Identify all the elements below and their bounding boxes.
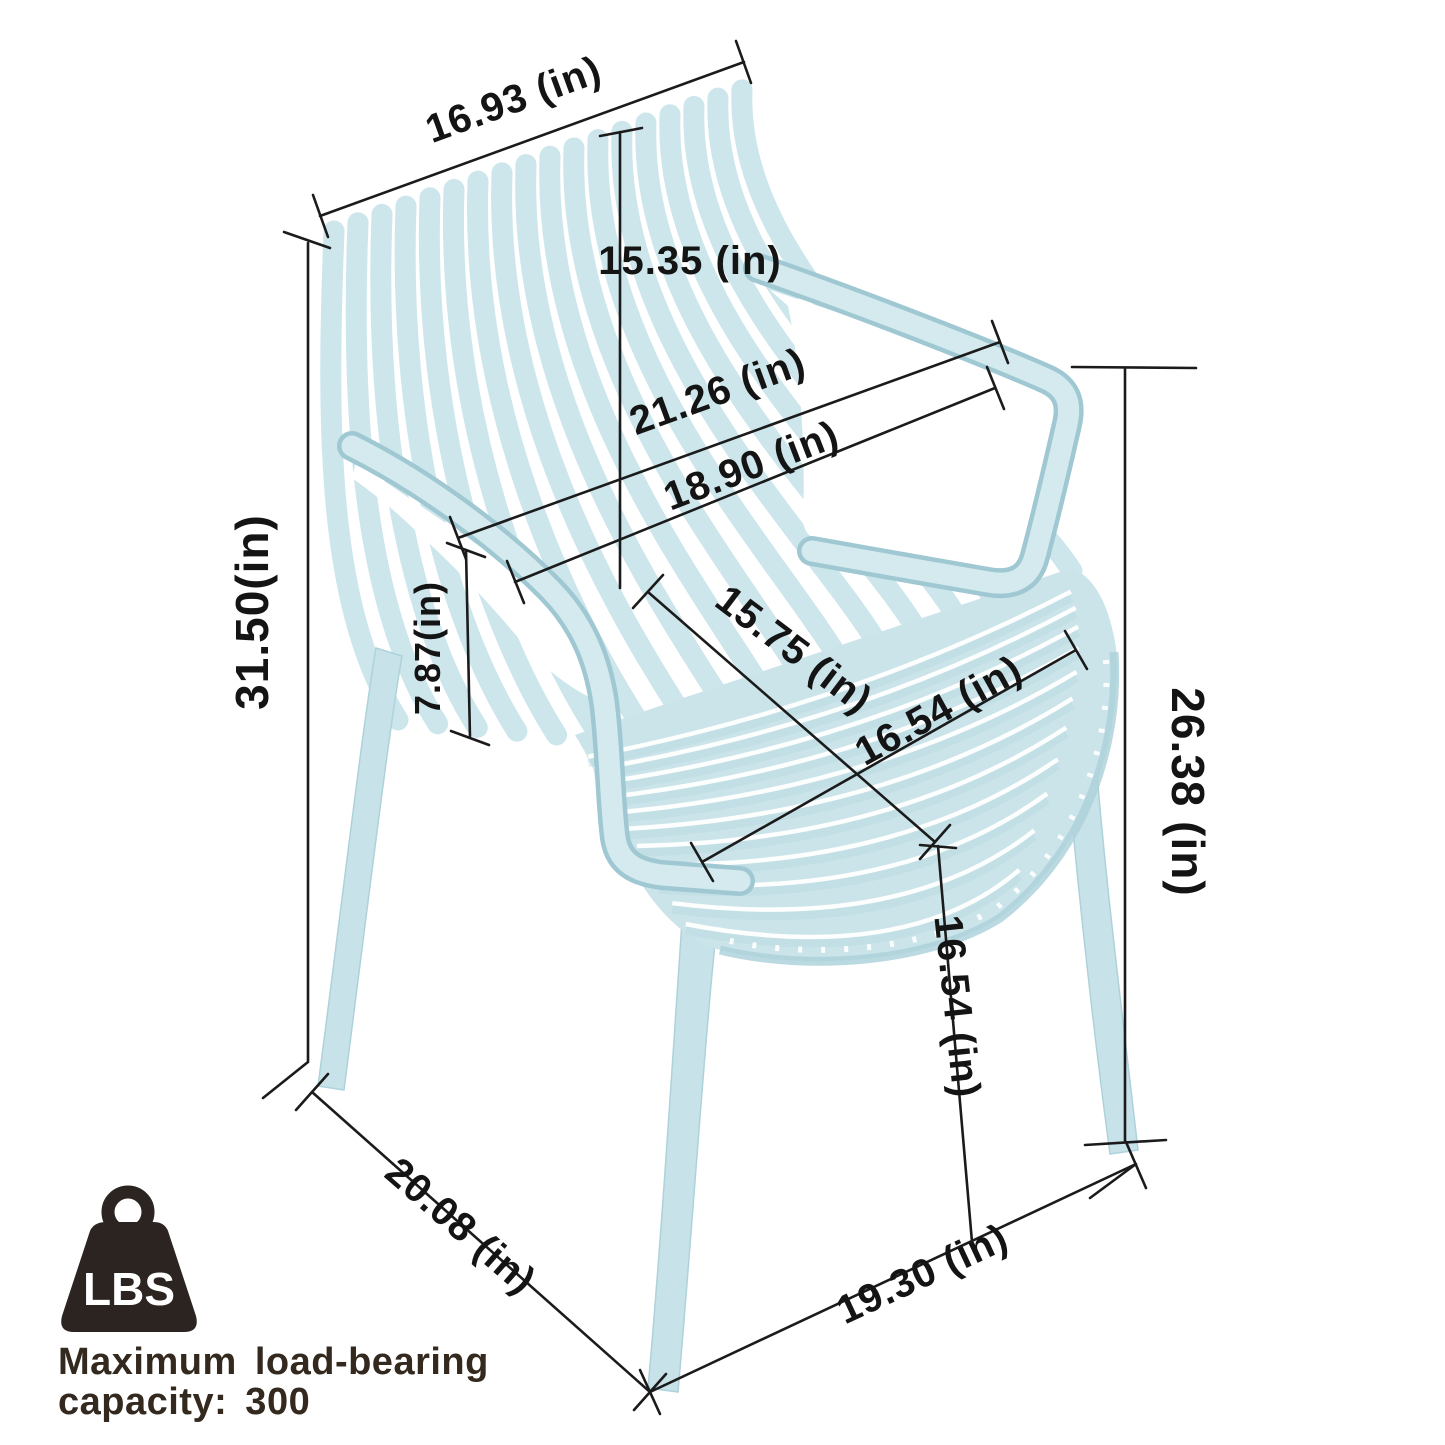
label-seat-floor-height: 16.54 (in): [925, 913, 988, 1100]
weight-icon-label: LBS: [83, 1263, 175, 1315]
weight-icon: LBS: [61, 1192, 197, 1332]
label-backrest-top-width: 16.93 (in): [420, 48, 607, 152]
label-base-width: 19.30 (in): [830, 1216, 1015, 1333]
label-base-depth: 20.08 (in): [377, 1149, 544, 1303]
load-caption-line1: Maximum load-bearing: [58, 1341, 489, 1383]
label-backrest-to-seat: 7.87(in): [407, 581, 448, 715]
dimension-diagram-svg: 16.93 (in) 15.35 (in) 21.26 (in) 18.90 (…: [0, 0, 1445, 1445]
load-capacity-badge: LBS Maximum load-bearing capacity: 300: [58, 1192, 489, 1423]
load-caption-line2: capacity: 300: [58, 1381, 310, 1423]
chair-back-left-leg: [318, 648, 402, 1090]
label-overall-height: 31.50(in): [226, 514, 278, 710]
label-armrest-floor-height: 26.38 (in): [1162, 687, 1214, 896]
product-dimension-image: 16.93 (in) 15.35 (in) 21.26 (in) 18.90 (…: [0, 0, 1445, 1445]
label-backrest-height: 15.35 (in): [598, 239, 781, 283]
